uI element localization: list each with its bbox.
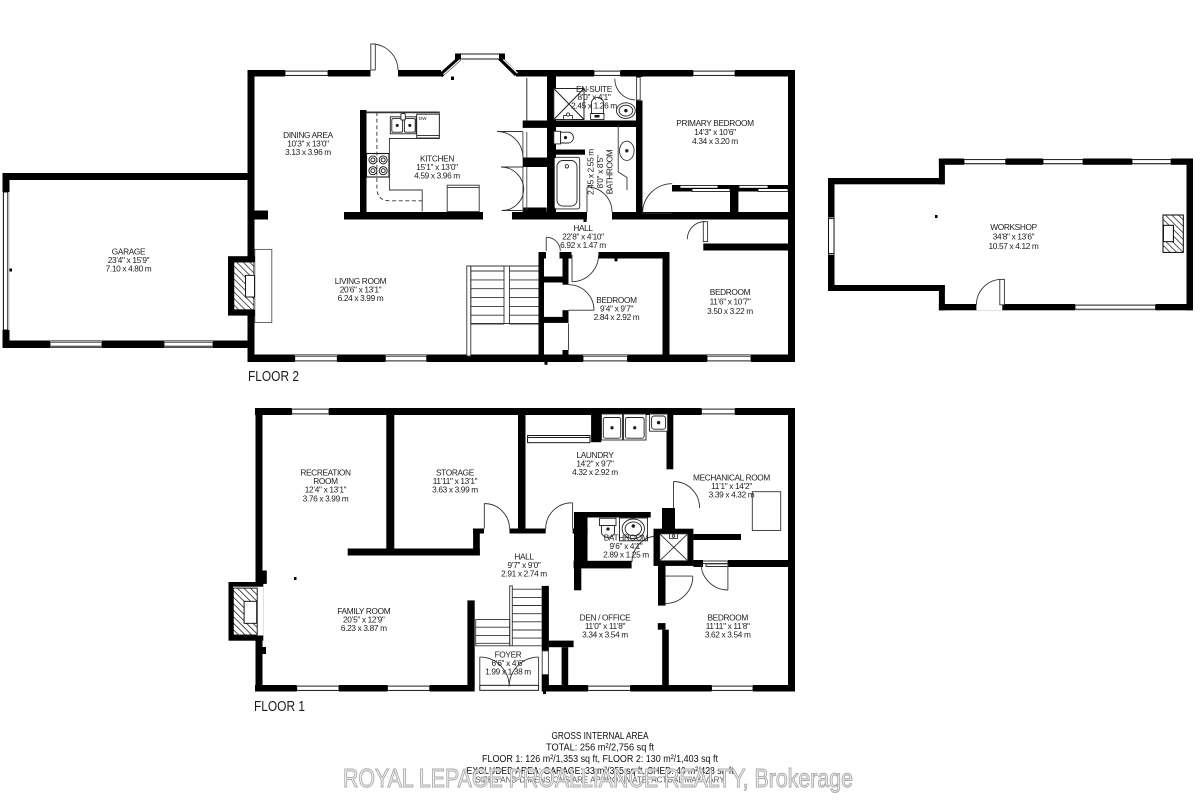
svg-text:DINING AREA10’3" x 13’0"3.13 x: DINING AREA10’3" x 13’0"3.13 x 3.96 m <box>283 130 333 157</box>
svg-text:LIVING ROOM20’6" x 13’1"6.24 x: LIVING ROOM20’6" x 13’1"6.24 x 3.99 m <box>335 276 387 303</box>
svg-text:GARAGE23’4" x 15’9"7.10 x 4.80: GARAGE23’4" x 15’9"7.10 x 4.80 m <box>106 247 152 274</box>
svg-text:RECREATIONROOM12’4" x 13’1"3.7: RECREATIONROOM12’4" x 13’1"3.76 x 3.99 m <box>300 468 351 504</box>
svg-text:DW: DW <box>419 116 427 121</box>
svg-text:BEDROOM9’4" x 9’7"2.84 x 2.92: BEDROOM9’4" x 9’7"2.84 x 2.92 m <box>594 295 640 322</box>
svg-text:WORKSHOP34’8" x 13’6"10.57 x 4: WORKSHOP34’8" x 13’6"10.57 x 4.12 m <box>989 222 1039 251</box>
svg-text:LAUNDRY14’2" x 9’7"4.32 x 2.92: LAUNDRY14’2" x 9’7"4.32 x 2.92 m <box>572 450 618 477</box>
svg-text:STORAGE11’11" x 13’1"3.63 x 3.: STORAGE11’11" x 13’1"3.63 x 3.99 m <box>432 468 478 495</box>
svg-text:FLOOR 1: FLOOR 1 <box>254 699 305 715</box>
svg-text:BATHROOM8’0" x 8’5"2.45 x 2.55: BATHROOM8’0" x 8’5"2.45 x 2.55 m <box>586 149 615 195</box>
svg-text:BATHROOM9’6" x 4’1"2.89 x 1.25: BATHROOM9’6" x 4’1"2.89 x 1.25 m <box>603 533 649 560</box>
svg-text:DEN / OFFICE11’0" x 11’8"3.34: DEN / OFFICE11’0" x 11’8"3.34 x 3.54 m <box>580 612 631 639</box>
svg-text:ROYAL LEPAGE PROALLIANCE REALT: ROYAL LEPAGE PROALLIANCE REALTY, Brokera… <box>343 763 853 793</box>
svg-text:KITCHEN15’1" x 13’0"4.59 x 3.9: KITCHEN15’1" x 13’0"4.59 x 3.96 m <box>414 154 460 181</box>
svg-text:BEDROOM11’11" x 11’8"3.62 x 3.: BEDROOM11’11" x 11’8"3.62 x 3.54 m <box>705 612 751 639</box>
svg-text:FLOOR 2: FLOOR 2 <box>248 369 299 385</box>
svg-text:BEDROOM11’6" x 10’7"3.50 x 3.2: BEDROOM11’6" x 10’7"3.50 x 3.22 m <box>707 287 753 316</box>
svg-text:FAMILY ROOM20’5" x 12’9"6.23 x: FAMILY ROOM20’5" x 12’9"6.23 x 3.87 m <box>337 606 390 633</box>
svg-text:EN-SUITE8’0" x 4’1"2.45 x 1.26: EN-SUITE8’0" x 4’1"2.45 x 1.26 m <box>571 84 617 110</box>
